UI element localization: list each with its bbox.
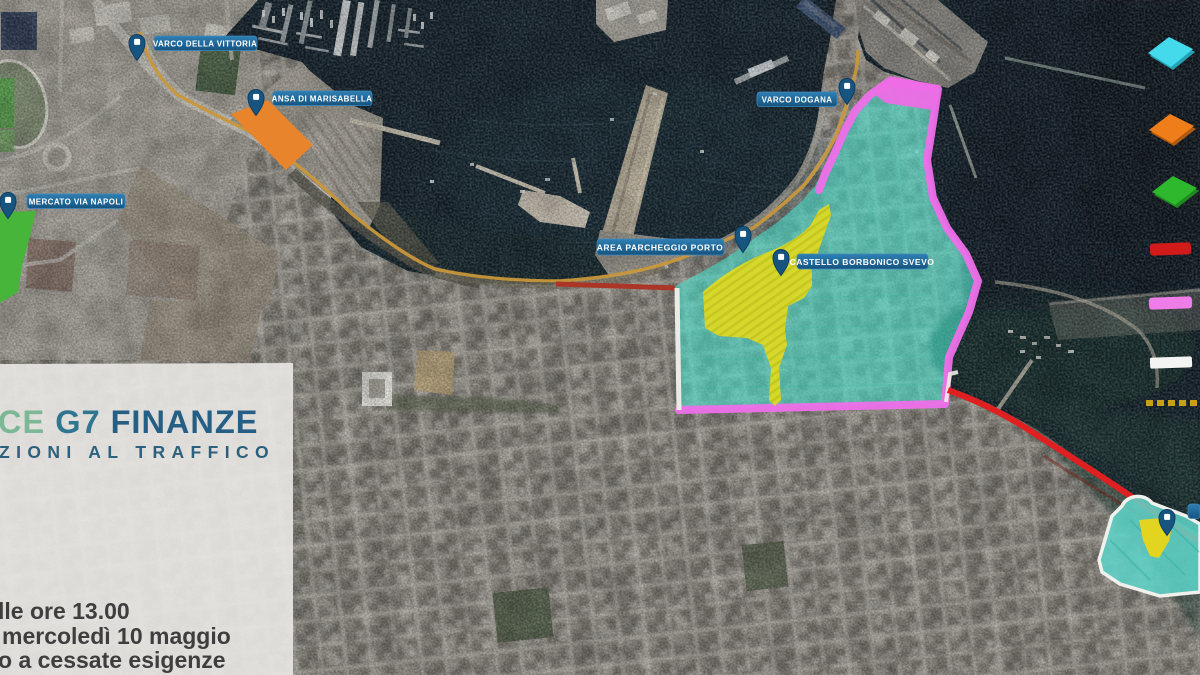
svg-text:o a cessate esigenze: o a cessate esigenze (0, 647, 226, 673)
svg-text:VARCO DOGANA: VARCO DOGANA (762, 96, 833, 105)
svg-text:MERCATO VIA NAPOLI: MERCATO VIA NAPOLI (29, 198, 124, 207)
svg-text:lle ore 13.00: lle ore 13.00 (0, 598, 130, 624)
svg-text:VARCO DELLA VITTORIA: VARCO DELLA VITTORIA (153, 40, 257, 49)
svg-text:mercoledì 10 maggio: mercoledì 10 maggio (2, 623, 231, 649)
svg-text:CE G7 FINANZE: CE G7 FINANZE (0, 404, 258, 440)
svg-text:ZIONI AL TRAFFICO: ZIONI AL TRAFFICO (0, 442, 275, 462)
svg-text:ANSA DI MARISABELLA: ANSA DI MARISABELLA (272, 95, 373, 104)
svg-text:AREA PARCHEGGIO PORTO: AREA PARCHEGGIO PORTO (597, 243, 724, 253)
svg-text:CASTELLO BORBONICO SVEVO: CASTELLO BORBONICO SVEVO (790, 257, 935, 267)
